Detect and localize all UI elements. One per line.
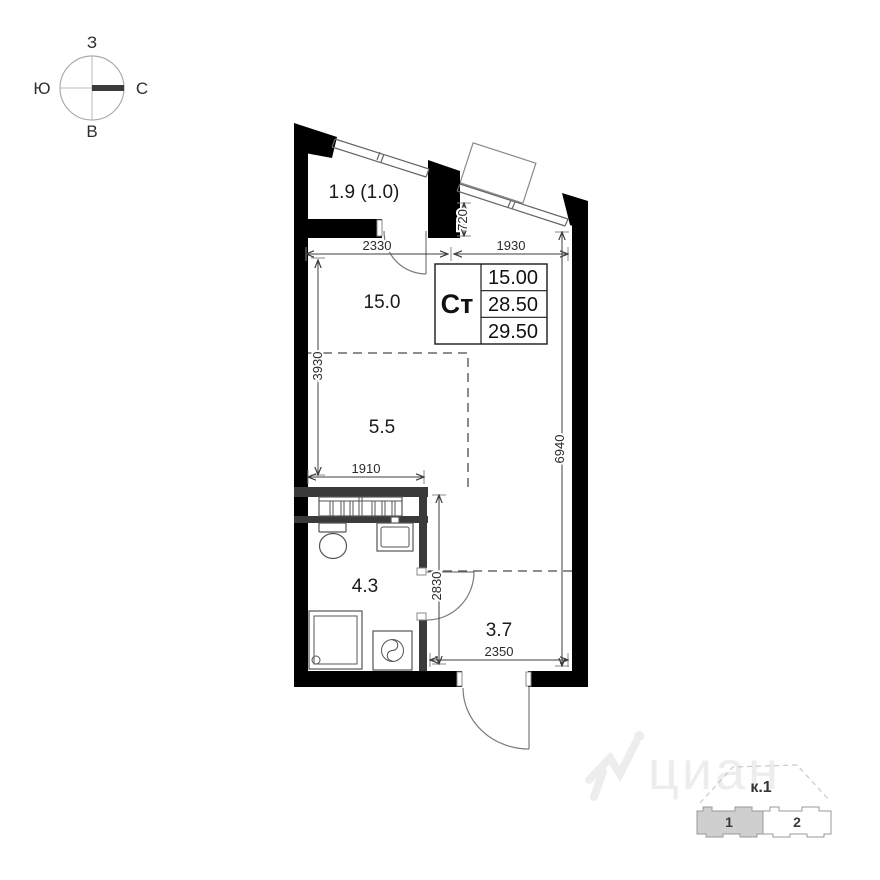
wall-bathroom-right-lower bbox=[419, 620, 427, 671]
section-1-label: 1 bbox=[725, 814, 733, 830]
dim-label-6940: 6940 bbox=[552, 435, 567, 464]
cian-logo-dot bbox=[634, 731, 644, 741]
floorplan-canvas: циан З Ю С В bbox=[0, 0, 880, 880]
wall-bottom-right bbox=[528, 671, 588, 687]
wall-bathroom-right-upper bbox=[419, 497, 427, 568]
exterior-walls bbox=[294, 123, 588, 687]
wall-bathroom-top-inner bbox=[294, 516, 428, 523]
section-2-label: 2 bbox=[793, 814, 801, 830]
compass-north-label: С bbox=[136, 79, 148, 98]
table-value-living: 15.00 bbox=[488, 267, 538, 289]
floorplan-page: циан З Ю С В bbox=[0, 0, 880, 880]
wall-bathroom-top-outer bbox=[294, 487, 428, 497]
room-area-kitchen-niche: 5.5 bbox=[369, 417, 395, 438]
toilet-icon bbox=[319, 523, 347, 559]
entrance-door bbox=[463, 687, 529, 749]
balcony-glazing bbox=[332, 139, 429, 177]
room-area-balcony: 1.9 (1.0) bbox=[329, 182, 400, 203]
compass-east-label: В bbox=[86, 122, 97, 141]
compass-south-label: Ю bbox=[33, 79, 50, 98]
cian-logo-icon bbox=[589, 742, 636, 797]
apartment-type-label: Ст bbox=[441, 289, 474, 319]
building-label: к.1 bbox=[750, 779, 771, 796]
room-area-bathroom: 4.3 bbox=[352, 576, 378, 597]
compass-west-label: З bbox=[87, 33, 97, 52]
balcony-basket bbox=[460, 143, 536, 203]
dim-label-2350: 2350 bbox=[485, 644, 514, 659]
room-area-hallway: 3.7 bbox=[486, 620, 512, 641]
dim-label-2830: 2830 bbox=[429, 572, 444, 601]
area-table: Ст 15.00 28.50 29.50 bbox=[435, 264, 547, 344]
table-value-area: 28.50 bbox=[488, 294, 538, 316]
compass-north-bar bbox=[92, 85, 124, 91]
wall-right bbox=[572, 224, 588, 687]
shower-tray-icon bbox=[309, 611, 362, 669]
washing-machine-icon bbox=[373, 631, 412, 670]
table-value-total: 29.50 bbox=[488, 321, 538, 343]
shaft-cabinet bbox=[319, 497, 402, 516]
dim-label-720: 720 bbox=[455, 209, 470, 231]
dim-label-2330: 2330 bbox=[363, 238, 392, 253]
dim-label-3930: 3930 bbox=[310, 352, 325, 381]
room-area-living: 15.0 bbox=[364, 292, 401, 313]
compass: З Ю С В bbox=[33, 33, 148, 141]
wall-bottom-left bbox=[294, 671, 462, 687]
dim-label-1930: 1930 bbox=[497, 238, 526, 253]
wall-balcony-bottom bbox=[294, 219, 382, 238]
dim-label-1910: 1910 bbox=[352, 461, 381, 476]
